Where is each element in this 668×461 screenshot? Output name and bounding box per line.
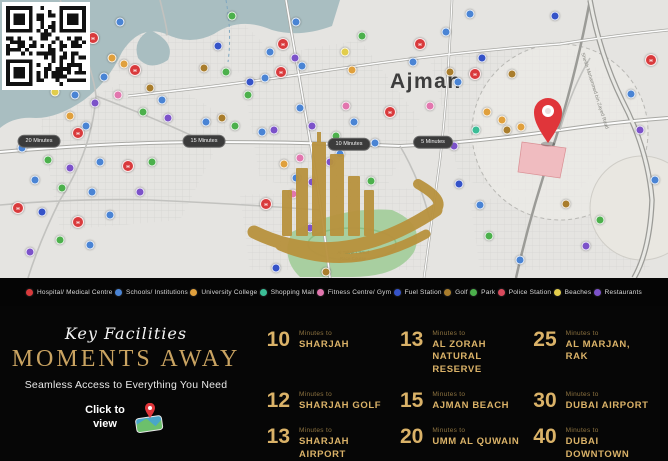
fitness-map-pin (426, 102, 435, 111)
school-map-pin (292, 18, 301, 27)
legend-label: Shopping Mall (271, 289, 315, 296)
school-map-pin (106, 211, 115, 220)
destination-label: DUBAI AIRPORT (566, 400, 649, 412)
cta-line2: view (85, 418, 125, 432)
restaurant-map-pin (308, 178, 317, 187)
fitness-map-pin (296, 154, 305, 163)
park-map-pin (596, 216, 605, 225)
park-map-pin (244, 91, 253, 100)
school-map-pin (442, 28, 451, 37)
university-map-pin (498, 116, 507, 125)
legend-item-beach: Beaches (554, 289, 592, 296)
minutes-unit-label: Minutes to (299, 330, 349, 337)
school-map-pin (31, 176, 40, 185)
restaurant-map-pin (91, 99, 100, 108)
travel-time-item: 12Minutes toSHARJAH GOLF (258, 391, 387, 412)
travel-time-item: 25Minutes toAL MARJAN, RAK (525, 330, 654, 376)
golf-legend-dot-icon (444, 289, 451, 296)
legend-label: Beaches (565, 289, 592, 296)
fuel-map-pin (246, 78, 255, 87)
travel-time-item: 40Minutes toDUBAI DOWNTOWN (525, 427, 654, 461)
drive-time-badge: 5 Minutes (413, 136, 453, 149)
legend-label: Fitness Centre/ Gym (328, 289, 391, 296)
park-map-pin (44, 156, 53, 165)
restaurant-map-pin (136, 188, 145, 197)
fuel-map-pin (455, 180, 464, 189)
travel-time-item: 13Minutes toSHARJAH AIRPORT (258, 427, 387, 461)
fuel-map-pin (38, 208, 47, 217)
destination-label: AJMAN BEACH (432, 400, 509, 412)
legend-label: Police Station (509, 289, 552, 296)
minutes-value: 15 (391, 391, 423, 411)
minutes-value: 13 (391, 330, 423, 350)
school-map-pin (651, 176, 660, 185)
school-map-pin (350, 118, 359, 127)
info-panel: Key Facilities MOMENTS AWAY Seamless Acc… (0, 306, 668, 452)
legend-item-police: Police Station (498, 289, 552, 296)
hospital-map-pin: H (275, 66, 287, 78)
promo-subtitle: Seamless Access to Everything You Need (0, 379, 252, 391)
golf-map-pin (562, 200, 571, 209)
destination-label: UMM AL QUWAIN (432, 436, 519, 448)
minutes-unit-label: Minutes to (432, 391, 509, 398)
legend-label: Hospital/ Medical Centre (37, 289, 113, 296)
university-map-pin (483, 108, 492, 117)
park-map-pin (139, 108, 148, 117)
minutes-unit-label: Minutes to (566, 427, 654, 434)
park-map-pin (222, 68, 231, 77)
fitness-map-pin (289, 190, 298, 199)
school-legend-dot-icon (115, 289, 122, 296)
hospital-map-pin: H (122, 160, 134, 172)
restaurant-map-pin (326, 158, 335, 167)
fuel-map-pin (272, 264, 281, 273)
school-map-pin (516, 256, 525, 265)
minutes-unit-label: Minutes to (566, 330, 654, 337)
destination-label: DUBAI DOWNTOWN (566, 436, 654, 461)
restaurant-map-pin (291, 54, 300, 63)
legend-item-golf: Golf (444, 289, 468, 296)
hospital-map-pin: H (260, 198, 272, 210)
university-map-pin (280, 160, 289, 169)
hospital-map-pin: H (645, 54, 657, 66)
travel-time-item: 15Minutes toAJMAN BEACH (391, 391, 520, 412)
restaurant-map-pin (308, 122, 317, 131)
drive-time-badge: 20 Minutes (18, 135, 61, 148)
fuel-map-pin (478, 54, 487, 63)
travel-times-grid: 10Minutes toSHARJAH13Minutes toAL ZORAH … (252, 306, 668, 452)
legend-label: University College (201, 289, 257, 296)
golf-map-pin (322, 268, 331, 277)
park-map-pin (367, 177, 376, 186)
promo-script-title: Key Facilities (0, 324, 252, 343)
fitness-map-pin (114, 91, 123, 100)
legend-label: Restaurants (605, 289, 642, 296)
race-course-label-line2: Race Course (318, 256, 388, 262)
restaurant-map-pin (270, 126, 279, 135)
fitness-legend-dot-icon (317, 289, 324, 296)
school-map-pin (261, 74, 270, 83)
legend-item-university: University College (190, 289, 257, 296)
hospital-map-pin: H (129, 64, 141, 76)
race-course-label: Al Tallah Camel Race Course (318, 250, 388, 263)
fuel-legend-dot-icon (394, 289, 401, 296)
school-map-pin (266, 48, 275, 57)
minutes-value: 13 (258, 427, 290, 447)
fuel-map-pin (214, 42, 223, 51)
school-map-pin (202, 118, 211, 127)
fuel-map-pin (551, 12, 560, 21)
legend-item-hospital: Hospital/ Medical Centre (26, 289, 113, 296)
drive-time-badge: 10 Minutes (328, 138, 371, 151)
school-map-pin (454, 78, 463, 87)
hospital-map-pin: H (384, 106, 396, 118)
restaurant-map-pin (582, 242, 591, 251)
school-map-pin (71, 91, 80, 100)
hospital-map-pin: H (414, 38, 426, 50)
minutes-value: 20 (391, 427, 423, 447)
golf-map-pin (503, 126, 512, 135)
golf-map-pin (146, 84, 155, 93)
restaurant-legend-dot-icon (594, 289, 601, 296)
park-map-pin (358, 32, 367, 41)
hospital-legend-dot-icon (26, 289, 33, 296)
legend-label: Schools/ Institutions (126, 289, 188, 296)
legend-label: Golf (455, 289, 468, 296)
school-map-pin (96, 158, 105, 167)
university-map-pin (66, 112, 75, 121)
park-map-pin (228, 12, 237, 21)
park-map-pin (231, 122, 240, 131)
click-to-view-button[interactable]: Click to view (0, 403, 252, 433)
restaurant-map-pin (26, 248, 35, 257)
promo-headline: MOMENTS AWAY (0, 346, 252, 373)
golf-map-pin (508, 70, 517, 79)
school-map-pin (476, 201, 485, 210)
park-legend-dot-icon (470, 289, 477, 296)
legend-item-restaurant: Restaurants (594, 289, 642, 296)
university-map-pin (348, 66, 357, 75)
school-map-pin (258, 128, 267, 137)
school-map-pin (409, 58, 418, 67)
click-to-view-label: Click to view (85, 404, 125, 432)
police-legend-dot-icon (498, 289, 505, 296)
school-map-pin (116, 18, 125, 27)
minutes-unit-label: Minutes to (566, 391, 649, 398)
destination-label: SHARJAH GOLF (299, 400, 381, 412)
restaurant-map-pin (66, 164, 75, 173)
school-map-pin (466, 10, 475, 19)
golf-map-pin (218, 114, 227, 123)
legend-item-shopping: Shopping Mall (260, 289, 315, 296)
minutes-unit-label: Minutes to (299, 391, 381, 398)
school-map-pin (86, 241, 95, 250)
golf-map-pin (446, 68, 455, 77)
school-map-pin (296, 104, 305, 113)
park-map-pin (485, 232, 494, 241)
legend-item-park: Park (470, 289, 495, 296)
restaurant-map-pin (636, 126, 645, 135)
destination-label: AL MARJAN, RAK (566, 339, 654, 364)
university-map-pin (108, 54, 117, 63)
beach-map-pin (341, 48, 350, 57)
school-map-pin (100, 73, 109, 82)
park-map-pin (56, 236, 65, 245)
property-plot (518, 142, 566, 178)
university-map-pin (517, 123, 526, 132)
school-map-pin (627, 90, 636, 99)
hospital-map-pin: H (469, 68, 481, 80)
park-map-pin (148, 158, 157, 167)
hospital-map-pin: H (72, 216, 84, 228)
hospital-map-pin: H (277, 38, 289, 50)
legend-label: Park (481, 289, 495, 296)
qr-code (2, 2, 90, 90)
minutes-value: 10 (258, 330, 290, 350)
university-map-pin (120, 60, 129, 69)
cta-line1: Click to (85, 404, 125, 418)
promo-block: Key Facilities MOMENTS AWAY Seamless Acc… (0, 306, 252, 452)
school-map-pin (88, 188, 97, 197)
school-map-pin (292, 174, 301, 183)
legend-label: Fuel Station (405, 289, 442, 296)
minutes-value: 30 (525, 391, 557, 411)
shopping-map-pin (472, 126, 481, 135)
minutes-value: 25 (525, 330, 557, 350)
legend-item-fitness: Fitness Centre/ Gym (317, 289, 391, 296)
city-map: Ajman Sheikh Mohammed bin Zayed Road Al … (0, 0, 668, 278)
legend-item-fuel: Fuel Station (394, 289, 442, 296)
hospital-map-pin: H (12, 202, 24, 214)
university-legend-dot-icon (190, 289, 197, 296)
school-map-pin (336, 150, 345, 159)
minutes-unit-label: Minutes to (432, 427, 519, 434)
shopping-legend-dot-icon (260, 289, 267, 296)
golf-map-pin (200, 64, 209, 73)
restaurant-map-pin (164, 114, 173, 123)
school-map-pin (158, 96, 167, 105)
school-map-pin (371, 139, 380, 148)
restaurant-map-pin (306, 224, 315, 233)
destination-label: SHARJAH AIRPORT (299, 436, 387, 461)
park-map-pin (58, 184, 67, 193)
travel-time-item: 10Minutes toSHARJAH (258, 330, 387, 376)
school-map-pin (298, 62, 307, 71)
travel-time-item: 20Minutes toUMM AL QUWAIN (391, 427, 520, 461)
fitness-map-pin (342, 102, 351, 111)
minutes-value: 40 (525, 427, 557, 447)
destination-label: AL ZORAH NATURAL RESERVE (432, 339, 520, 376)
travel-time-item: 30Minutes toDUBAI AIRPORT (525, 391, 654, 412)
drive-time-badge: 15 Minutes (183, 135, 226, 148)
beach-legend-dot-icon (554, 289, 561, 296)
minutes-unit-label: Minutes to (299, 427, 387, 434)
minutes-unit-label: Minutes to (432, 330, 520, 337)
hospital-map-pin: H (72, 127, 84, 139)
travel-time-item: 13Minutes toAL ZORAH NATURAL RESERVE (391, 330, 520, 376)
map-legend: Hospital/ Medical CentreSchools/ Institu… (0, 278, 668, 306)
legend-item-school: Schools/ Institutions (115, 289, 188, 296)
destination-label: SHARJAH (299, 339, 349, 351)
minutes-value: 12 (258, 391, 290, 411)
map-pin-icon (133, 403, 167, 433)
